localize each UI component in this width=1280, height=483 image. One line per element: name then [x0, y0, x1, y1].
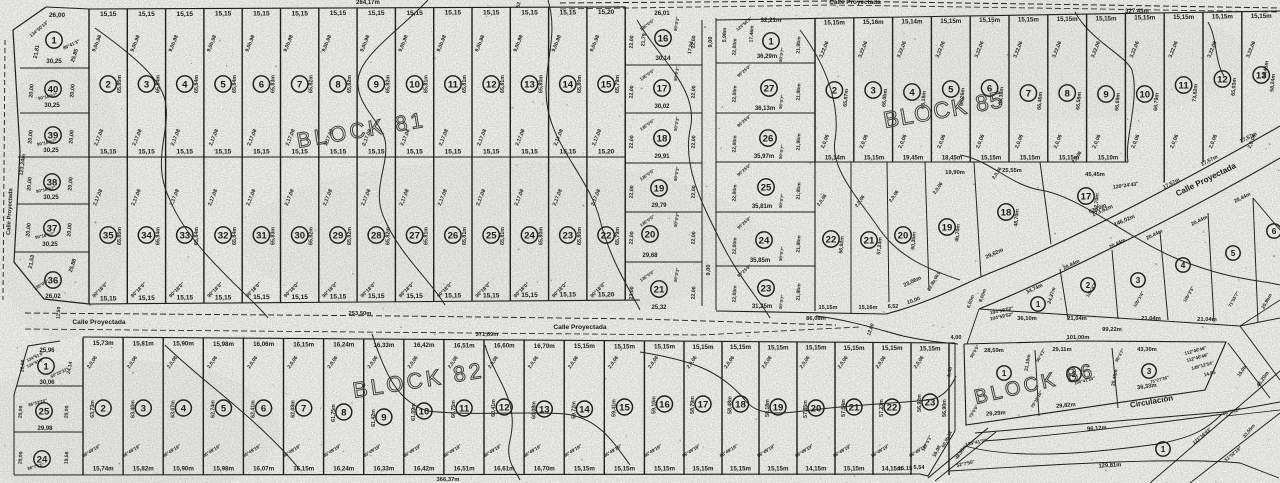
svg-text:15,15m: 15,15m: [864, 155, 884, 161]
svg-text:16,51m: 16,51m: [454, 466, 475, 473]
svg-text:23: 23: [761, 283, 772, 294]
svg-text:21,9bm: 21,9bm: [796, 36, 803, 54]
svg-text:15,15m: 15,15m: [654, 466, 675, 473]
svg-text:65,84m: 65,84m: [156, 227, 162, 245]
svg-text:15,10m: 15,10m: [1098, 155, 1118, 161]
svg-text:16,24m: 16,24m: [333, 466, 354, 473]
svg-text:65,84m: 65,84m: [156, 75, 162, 93]
svg-text:366,37m: 366,37m: [437, 477, 460, 483]
svg-text:29,11m: 29,11m: [1052, 347, 1071, 353]
svg-text:15,15: 15,15: [253, 294, 270, 301]
svg-text:8: 8: [335, 79, 341, 90]
svg-text:15,15: 15,15: [215, 294, 232, 301]
svg-text:16,33m: 16,33m: [373, 466, 394, 473]
svg-text:13: 13: [539, 404, 550, 415]
svg-text:62,08m: 62,08m: [291, 400, 297, 418]
svg-text:65,82m: 65,82m: [385, 75, 391, 93]
svg-text:65,80m: 65,80m: [539, 75, 545, 93]
svg-text:15,81m: 15,81m: [133, 340, 154, 347]
svg-text:9,00: 9,00: [708, 37, 714, 48]
svg-text:43,30m: 43,30m: [1137, 347, 1157, 353]
svg-text:57,23m: 57,23m: [879, 399, 885, 417]
svg-text:15,98m: 15,98m: [213, 341, 234, 348]
svg-text:86,08m: 86,08m: [806, 316, 826, 322]
svg-text:18: 18: [657, 133, 668, 144]
svg-text:58,79m: 58,79m: [690, 396, 696, 414]
svg-text:22,00m: 22,00m: [732, 85, 739, 103]
svg-text:15,15: 15,15: [445, 10, 462, 17]
svg-text:1: 1: [768, 36, 774, 47]
svg-text:65,84m: 65,84m: [194, 227, 200, 245]
svg-text:32,21m: 32,21m: [761, 17, 782, 24]
svg-text:9: 9: [381, 412, 386, 423]
svg-text:60,08m: 60,08m: [531, 401, 537, 419]
svg-text:26: 26: [763, 133, 774, 144]
svg-text:56,90m: 56,90m: [942, 399, 948, 417]
svg-text:45,45m: 45,45m: [1085, 172, 1105, 178]
svg-text:28,59m: 28,59m: [984, 348, 1004, 354]
svg-text:60,41m: 60,41m: [491, 399, 497, 417]
svg-text:15,15m: 15,15m: [574, 466, 595, 473]
svg-text:32: 32: [218, 230, 229, 241]
svg-text:59,41m: 59,41m: [612, 399, 618, 417]
svg-text:1: 1: [1002, 369, 1007, 378]
svg-text:16,06m: 16,06m: [253, 341, 274, 348]
svg-text:22,00m: 22,00m: [732, 184, 739, 202]
svg-text:15,15m: 15,15m: [1251, 13, 1272, 20]
svg-text:11: 11: [448, 79, 459, 90]
svg-text:9: 9: [374, 79, 379, 90]
svg-text:15,15m: 15,15m: [806, 345, 827, 352]
svg-text:65,79m: 65,79m: [615, 75, 621, 93]
svg-text:29,91: 29,91: [654, 154, 670, 160]
svg-text:15,15m: 15,15m: [693, 344, 714, 351]
svg-text:15,15m: 15,15m: [654, 344, 675, 351]
svg-text:15: 15: [619, 402, 630, 413]
svg-text:17: 17: [1081, 191, 1092, 202]
svg-text:6,52: 6,52: [888, 304, 899, 310]
svg-text:22: 22: [826, 234, 837, 245]
svg-text:6: 6: [259, 79, 264, 90]
svg-text:16,51m: 16,51m: [454, 342, 475, 349]
svg-text:20: 20: [898, 230, 909, 241]
svg-text:57,54m: 57,54m: [841, 399, 847, 417]
svg-text:15,15m: 15,15m: [844, 345, 865, 352]
svg-text:15,15: 15,15: [330, 149, 347, 156]
svg-text:14,15m: 14,15m: [806, 466, 827, 473]
svg-text:16,42m: 16,42m: [414, 466, 435, 473]
svg-text:4,00: 4,00: [951, 335, 962, 341]
svg-text:58,18m: 58,18m: [765, 399, 771, 417]
svg-text:16,15m: 16,15m: [293, 341, 314, 348]
svg-text:22,00: 22,00: [691, 85, 698, 98]
svg-text:25: 25: [761, 182, 772, 193]
svg-text:16,70m: 16,70m: [534, 343, 555, 350]
svg-text:19,90m: 19,90m: [945, 170, 965, 176]
svg-text:15,15: 15,15: [138, 295, 155, 302]
svg-text:56,92m: 56,92m: [917, 394, 923, 412]
svg-text:15,15: 15,15: [368, 10, 385, 17]
svg-text:15,15: 15,15: [560, 149, 577, 156]
svg-text:15,15: 15,15: [177, 295, 194, 302]
svg-text:Calle Proyectada: Calle Proyectada: [829, 0, 881, 6]
svg-text:15,15: 15,15: [291, 10, 308, 17]
svg-text:25,32: 25,32: [651, 305, 667, 311]
svg-text:5: 5: [1231, 249, 1236, 258]
svg-text:22,00m: 22,00m: [732, 135, 739, 153]
svg-text:65,81m: 65,81m: [462, 75, 468, 93]
svg-text:65,81m: 65,81m: [500, 75, 506, 93]
svg-text:21,9bm: 21,9bm: [796, 182, 803, 200]
svg-text:12: 12: [499, 402, 510, 413]
svg-text:25,55m: 25,55m: [1002, 168, 1022, 174]
svg-text:5: 5: [220, 79, 226, 90]
svg-text:16,61m: 16,61m: [494, 466, 515, 473]
svg-text:2: 2: [106, 79, 111, 90]
svg-text:101,00m: 101,00m: [1067, 335, 1090, 341]
svg-text:7: 7: [297, 79, 302, 90]
svg-text:22: 22: [887, 402, 898, 413]
svg-text:15,15: 15,15: [291, 294, 308, 301]
svg-text:26,01: 26,01: [654, 10, 670, 17]
svg-text:36,29m: 36,29m: [757, 54, 777, 60]
svg-text:15,15: 15,15: [445, 149, 462, 156]
svg-text:3: 3: [1147, 367, 1152, 376]
svg-text:65,82m: 65,82m: [347, 75, 353, 93]
svg-text:22,00m: 22,00m: [732, 285, 739, 303]
svg-text:1: 1: [1036, 300, 1041, 309]
svg-text:6: 6: [1272, 227, 1277, 236]
svg-text:15,15: 15,15: [521, 149, 538, 156]
svg-text:99,22m: 99,22m: [1102, 327, 1122, 333]
svg-text:17: 17: [698, 399, 709, 410]
svg-text:15,15: 15,15: [177, 11, 194, 18]
svg-text:15,20: 15,20: [598, 149, 615, 156]
svg-text:15,16m: 15,16m: [859, 305, 878, 311]
svg-text:15,15m: 15,15m: [614, 466, 635, 473]
svg-text:16,42m: 16,42m: [414, 342, 435, 349]
svg-text:14: 14: [562, 79, 573, 90]
svg-text:12: 12: [486, 79, 497, 90]
svg-text:35,81m: 35,81m: [752, 204, 772, 210]
svg-text:36,13m: 36,13m: [755, 106, 775, 112]
svg-text:5,54: 5,54: [914, 465, 926, 471]
svg-text:15,15: 15,15: [138, 149, 155, 156]
svg-text:16,24m: 16,24m: [333, 342, 354, 349]
svg-text:60,75m: 60,75m: [451, 400, 457, 418]
svg-text:16,70m: 16,70m: [534, 466, 555, 473]
svg-text:21,04m: 21,04m: [1197, 317, 1217, 323]
svg-text:16,60m: 16,60m: [494, 343, 515, 350]
svg-text:15,90m: 15,90m: [173, 341, 194, 348]
svg-text:15,15: 15,15: [406, 149, 423, 156]
svg-text:57,85m: 57,85m: [803, 400, 809, 418]
svg-text:35,97m: 35,97m: [754, 154, 774, 160]
svg-text:15,15: 15,15: [560, 9, 577, 16]
svg-text:15,15m: 15,15m: [1212, 14, 1233, 21]
svg-text:13: 13: [524, 79, 535, 90]
svg-text:15,15: 15,15: [138, 11, 155, 18]
svg-text:15,15: 15,15: [253, 11, 270, 18]
svg-text:15,15: 15,15: [368, 149, 385, 156]
svg-text:21,04m: 21,04m: [1141, 316, 1161, 322]
svg-text:15,15: 15,15: [100, 11, 117, 18]
svg-text:15: 15: [601, 79, 612, 90]
svg-text:4: 4: [182, 79, 188, 90]
svg-text:129,81m: 129,81m: [1098, 462, 1121, 469]
svg-text:58,48m: 58,48m: [728, 396, 734, 414]
svg-text:15,15m: 15,15m: [882, 345, 903, 352]
svg-text:19: 19: [773, 402, 784, 413]
svg-text:15,15m: 15,15m: [1020, 155, 1040, 161]
svg-text:19,45m: 19,45m: [903, 155, 923, 161]
svg-text:3: 3: [1136, 276, 1141, 285]
svg-text:264,17m: 264,17m: [356, 0, 380, 6]
svg-text:65,80m: 65,80m: [577, 75, 583, 93]
svg-text:21,04m: 21,04m: [1067, 316, 1087, 322]
svg-text:15,15: 15,15: [253, 149, 270, 156]
svg-text:21: 21: [849, 402, 860, 413]
svg-text:15,15m: 15,15m: [844, 466, 865, 473]
svg-text:15,15m: 15,15m: [981, 155, 1001, 161]
svg-text:18: 18: [1001, 207, 1012, 218]
svg-text:19: 19: [942, 222, 953, 233]
svg-text:14: 14: [579, 404, 590, 415]
svg-text:15,15m: 15,15m: [614, 343, 635, 350]
svg-text:17,46m: 17,46m: [749, 25, 756, 43]
svg-text:3: 3: [144, 79, 149, 90]
svg-text:15,15: 15,15: [177, 149, 194, 156]
svg-text:65,84m: 65,84m: [232, 75, 238, 93]
svg-text:15,15: 15,15: [215, 149, 232, 156]
svg-text:18: 18: [735, 399, 746, 410]
svg-text:15,15m: 15,15m: [768, 344, 789, 351]
svg-text:15,15m: 15,15m: [574, 343, 595, 350]
svg-text:21: 21: [864, 235, 875, 246]
svg-text:371,89m: 371,89m: [476, 332, 499, 338]
svg-text:15,15: 15,15: [483, 149, 500, 156]
svg-text:8: 8: [341, 407, 347, 418]
svg-text:17: 17: [657, 83, 668, 94]
svg-text:15,73m: 15,73m: [93, 340, 114, 347]
svg-text:15,15: 15,15: [215, 11, 232, 18]
svg-text:36,10m: 36,10m: [1017, 316, 1037, 322]
svg-text:59,10m: 59,10m: [652, 396, 658, 414]
svg-text:16: 16: [658, 33, 669, 44]
svg-text:253,50m: 253,50m: [349, 311, 372, 317]
svg-text:16: 16: [659, 399, 670, 410]
svg-text:Calle Proyectada: Calle Proyectada: [553, 324, 606, 331]
svg-text:15,15: 15,15: [483, 10, 500, 17]
svg-text:10: 10: [409, 79, 420, 90]
svg-text:22,00m: 22,00m: [732, 38, 739, 56]
svg-text:24: 24: [759, 235, 770, 246]
svg-text:65,84m: 65,84m: [194, 75, 200, 93]
svg-text:65,82m: 65,82m: [309, 75, 315, 93]
svg-text:15,15m: 15,15m: [730, 466, 751, 473]
svg-text:15,16m: 15,16m: [863, 19, 884, 26]
svg-text:21,9bm: 21,9bm: [796, 235, 803, 253]
svg-text:65,85m: 65,85m: [117, 75, 123, 93]
svg-text:61,75m: 61,75m: [331, 404, 337, 422]
svg-text:34: 34: [141, 230, 152, 241]
svg-text:15,15m: 15,15m: [693, 466, 714, 473]
svg-text:22,00: 22,00: [629, 135, 636, 148]
svg-text:65,84m: 65,84m: [232, 227, 238, 245]
svg-text:61,42m: 61,42m: [371, 409, 377, 427]
svg-text:15,15m: 15,15m: [824, 20, 845, 27]
svg-text:65,83m: 65,83m: [270, 75, 276, 93]
svg-text:1: 1: [51, 35, 57, 46]
svg-text:15,15: 15,15: [521, 9, 538, 16]
svg-text:15,15m: 15,15m: [920, 345, 941, 352]
svg-text:22,00: 22,00: [629, 85, 636, 98]
svg-text:21,9bm: 21,9bm: [796, 83, 803, 101]
svg-text:26,00: 26,00: [49, 12, 65, 19]
svg-text:21,9bm: 21,9bm: [796, 283, 803, 301]
svg-text:15,20: 15,20: [598, 9, 615, 16]
svg-text:22,00: 22,00: [691, 135, 698, 148]
svg-text:27: 27: [764, 83, 775, 94]
svg-text:15,15m: 15,15m: [730, 344, 751, 351]
svg-text:21,9bm: 21,9bm: [796, 133, 803, 151]
svg-text:35,85m: 35,85m: [750, 258, 770, 264]
svg-text:15,15: 15,15: [898, 466, 913, 472]
svg-text:18,45m: 18,45m: [942, 155, 962, 161]
svg-text:16,15m: 16,15m: [293, 466, 314, 473]
svg-text:65,81m: 65,81m: [424, 75, 430, 93]
svg-text:15,15m: 15,15m: [819, 305, 838, 311]
svg-text:30,02: 30,02: [654, 104, 670, 110]
svg-text:15,15m: 15,15m: [768, 466, 789, 473]
svg-text:15,15: 15,15: [330, 10, 347, 17]
svg-text:1: 1: [1161, 445, 1166, 454]
svg-text:7: 7: [301, 403, 306, 414]
svg-text:5,98m: 5,98m: [722, 27, 729, 42]
